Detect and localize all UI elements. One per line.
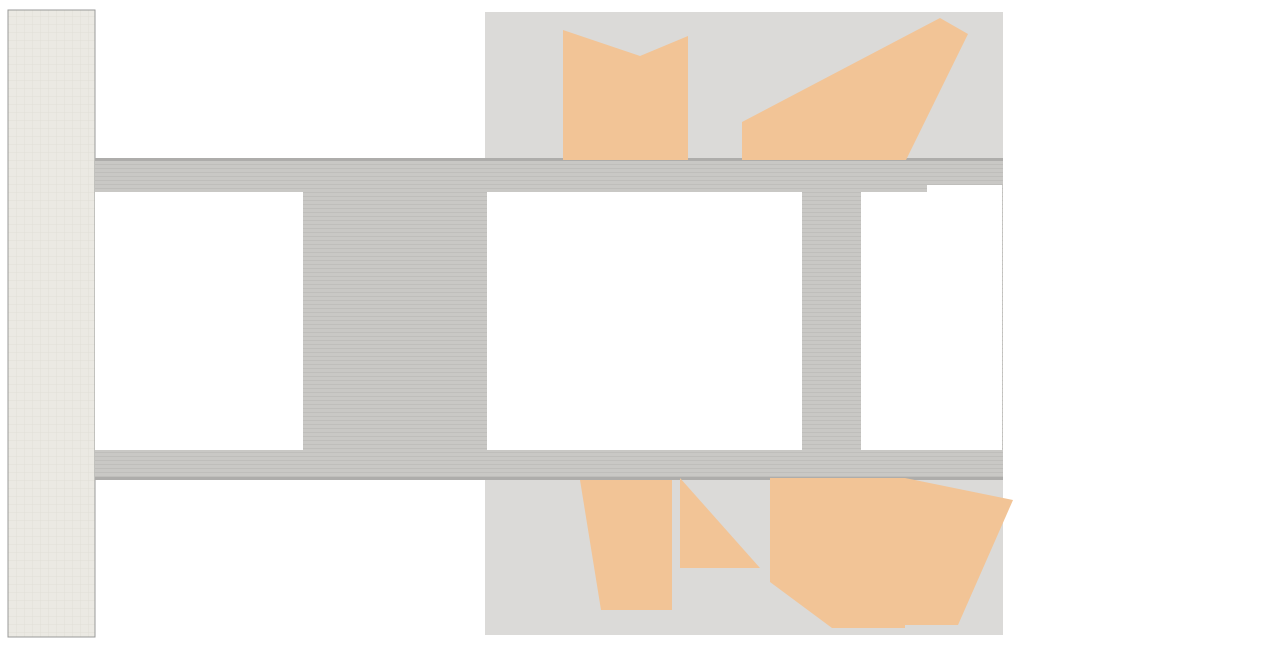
lounge-floor — [8, 10, 95, 637]
room-block — [487, 192, 560, 450]
floor-plan-svg — [0, 0, 1280, 645]
floor-plan — [0, 0, 1280, 645]
room-block — [927, 185, 1002, 450]
room-block — [95, 192, 303, 450]
room-blocks — [95, 185, 1002, 450]
room-block — [861, 192, 927, 450]
room-block — [568, 192, 802, 450]
